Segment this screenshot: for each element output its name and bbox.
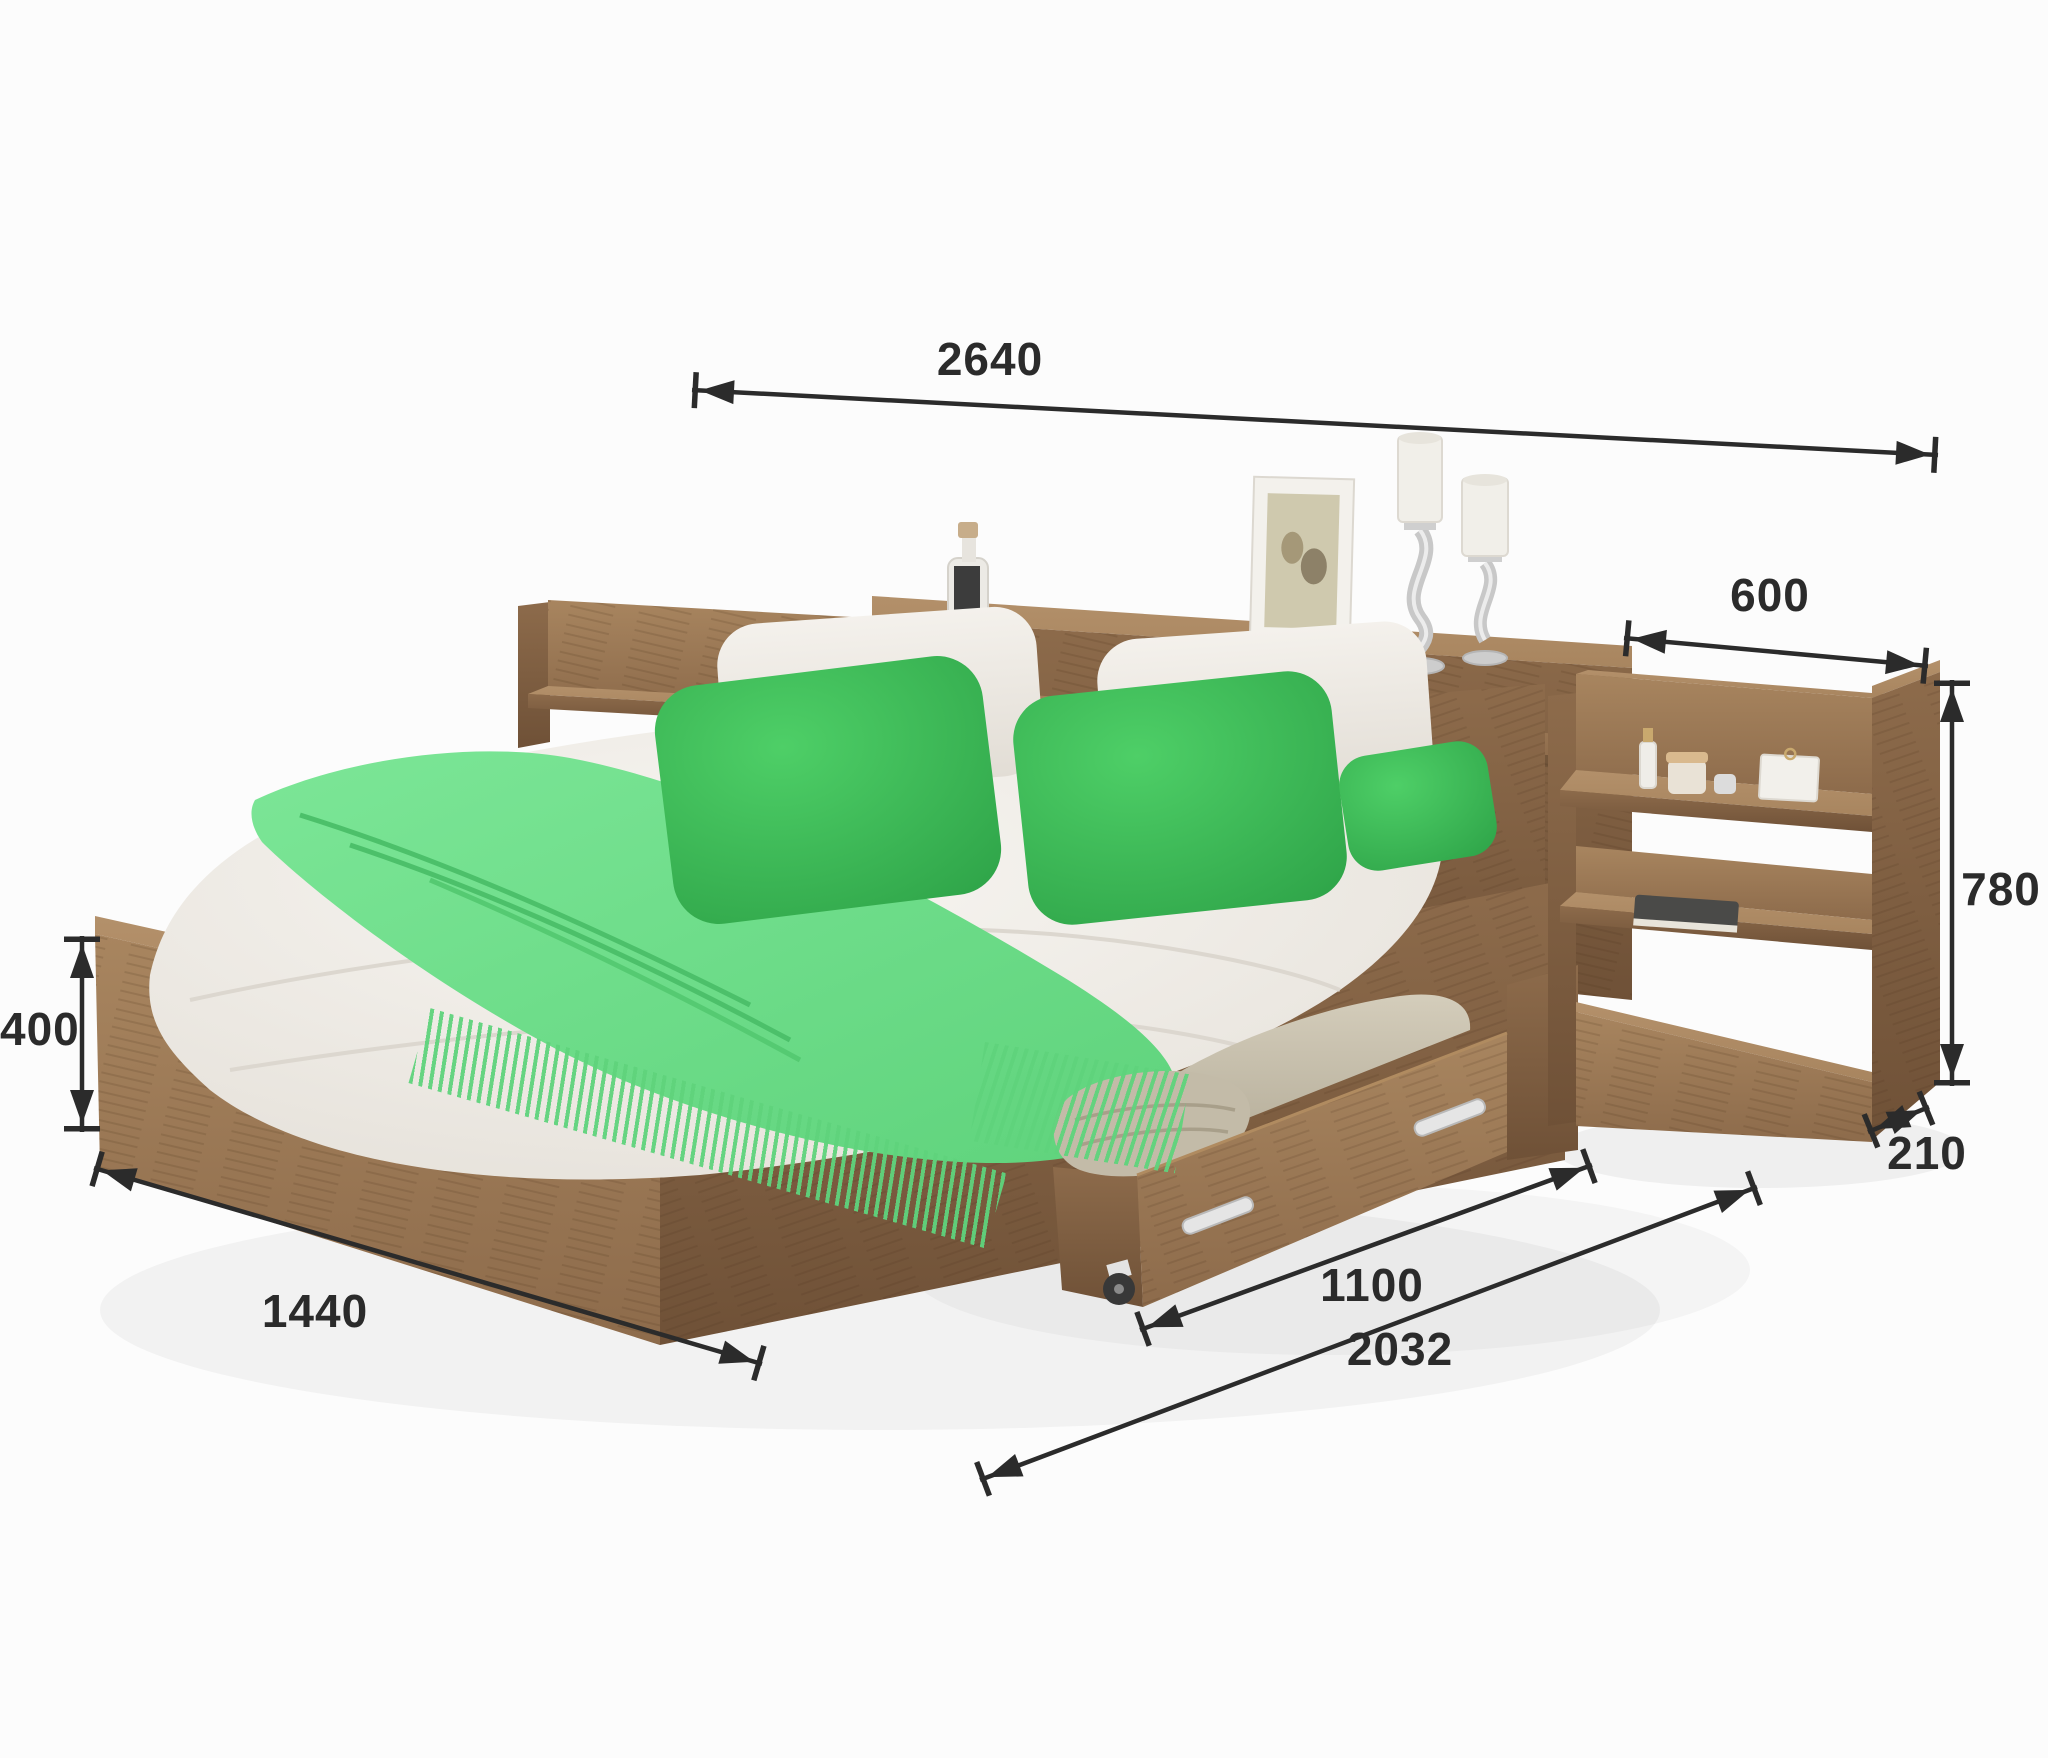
bed-scene-illustration bbox=[0, 0, 2048, 1758]
picture-frame bbox=[1250, 477, 1354, 646]
dim-label-frame-height: 400 bbox=[0, 1006, 78, 1052]
pillow-green-right bbox=[1009, 667, 1351, 929]
dim-label-drawer-length: 1100 bbox=[1282, 1262, 1462, 1308]
dim-label-nightstand-height: 780 bbox=[1956, 866, 2046, 912]
console-left-end-panel bbox=[518, 602, 550, 748]
cosmetics-jar bbox=[1666, 752, 1708, 794]
dim-label-bed-length: 2032 bbox=[1310, 1326, 1490, 1372]
dim-label-nightstand-width: 600 bbox=[1680, 572, 1860, 618]
cosmetics-small-jar bbox=[1714, 774, 1736, 794]
nightstand-shelf-unit bbox=[1548, 660, 1940, 1142]
furniture-dimension-diagram: 2640 600 780 400 1440 1100 2032 210 bbox=[0, 0, 2048, 1758]
dim-label-bed-width: 1440 bbox=[230, 1288, 400, 1334]
dim-label-total-width: 2640 bbox=[890, 336, 1090, 382]
dim-label-nightstand-depth: 210 bbox=[1862, 1130, 1992, 1176]
pillow-green-small bbox=[1335, 737, 1501, 875]
pillow-green-left bbox=[650, 651, 1007, 929]
